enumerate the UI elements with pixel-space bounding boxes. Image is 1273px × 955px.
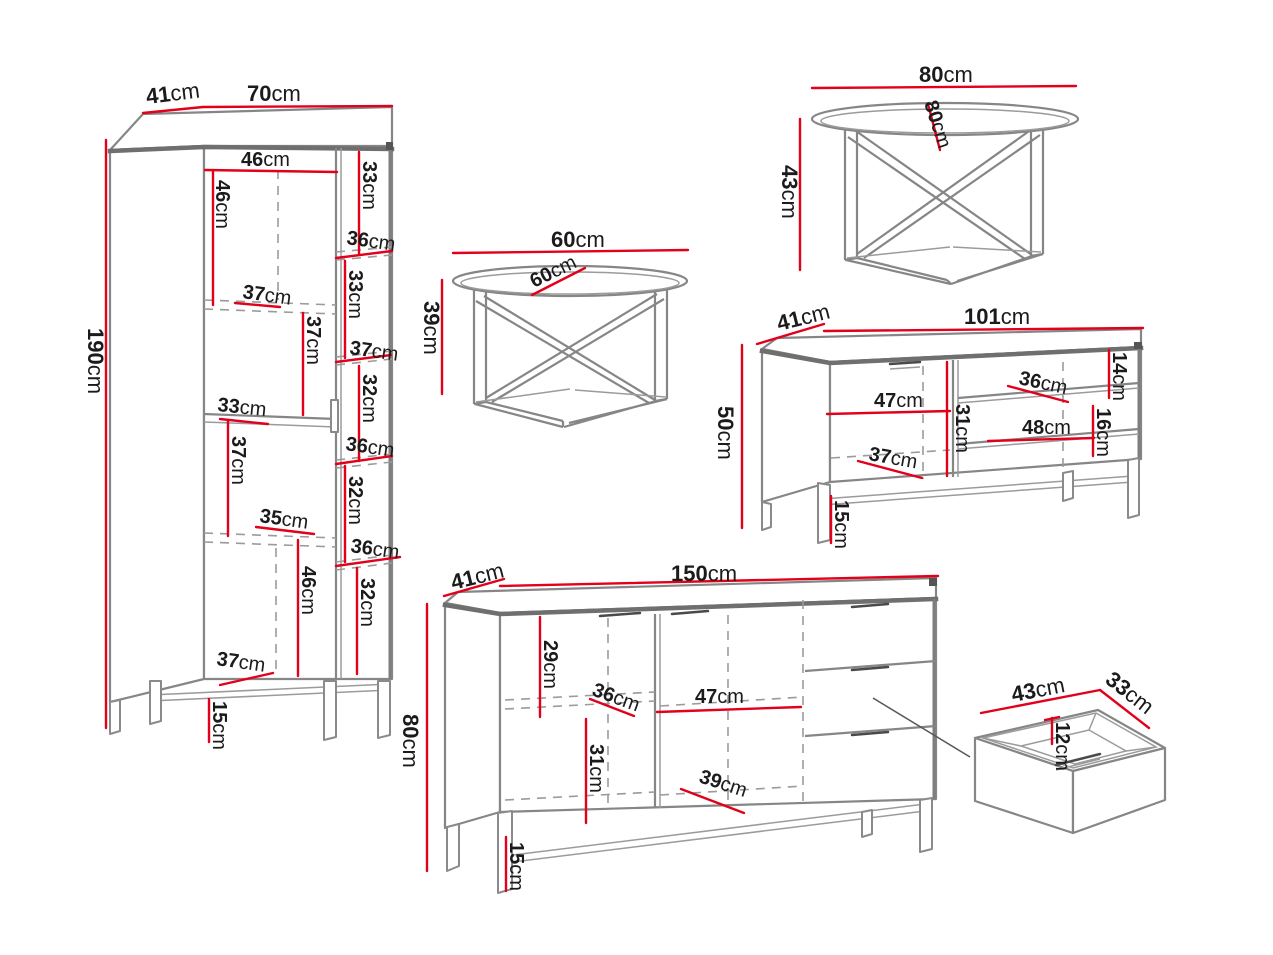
wardrobe-dim-label: 33cm: [344, 270, 366, 319]
sideboard-dim-label: 29cm: [539, 640, 561, 689]
sideboard-leg: [920, 798, 932, 852]
tv-stand-leg: [762, 502, 771, 530]
coffee-table-small-width-label: 60cm: [551, 227, 605, 252]
wardrobe-dim-label: 32cm: [344, 476, 366, 525]
wardrobe-top-face: [110, 107, 392, 150]
wardrobe-leg: [110, 700, 120, 734]
drawer-depth-label: 33cm: [1101, 666, 1159, 719]
coffee-table-large-width-label: 80cm: [919, 62, 973, 87]
tv-stand-width-label: 101cm: [964, 304, 1030, 329]
tv-stand-dim-label: 48cm: [1022, 417, 1071, 439]
wardrobe-leg: [324, 681, 336, 740]
wardrobe-dim-label: 46cm: [297, 566, 319, 615]
sideboard-height-label: 80cm: [398, 714, 423, 768]
wardrobe-leg: [378, 681, 390, 738]
coffee-table-large-drawing: 80cm 80cm 43cm: [777, 62, 1078, 284]
wardrobe-drawing: 41cm 70cm 190cm 46cm 46cm 37cm 37cm 33cm…: [83, 78, 401, 750]
wardrobe-leg-label: 15cm: [208, 701, 230, 750]
wardrobe-dim-label: 46cm: [241, 149, 290, 171]
furniture-dimension-diagram: 41cm 70cm 190cm 46cm 46cm 37cm 37cm 33cm…: [0, 0, 1273, 955]
diagram-canvas: 41cm 70cm 190cm 46cm 46cm 37cm 37cm 33cm…: [0, 0, 1273, 955]
tv-stand-drawing: 41cm 101cm 50cm 47cm 31cm 37cm 36cm 14cm…: [713, 299, 1143, 549]
tv-stand-side-face: [762, 349, 830, 502]
coffee-table-small-height-label: 39cm: [419, 301, 444, 355]
tv-stand-dim-label: 31cm: [951, 404, 973, 453]
tv-stand-leg: [1063, 471, 1073, 501]
sideboard-width-label: 150cm: [671, 561, 737, 586]
sideboard-drawing: 41cm 150cm 80cm 29cm 36cm 31cm 47cm 39cm…: [398, 558, 970, 893]
wardrobe-dim-label: 37cm: [302, 316, 324, 365]
wardrobe-dim-label: 32cm: [358, 374, 380, 423]
coffee-table-large-height-label: 43cm: [777, 165, 802, 219]
tv-stand-height-label: 50cm: [713, 406, 738, 460]
drawer-height-label: 12cm: [1051, 722, 1073, 771]
sideboard-leg: [447, 824, 459, 871]
wardrobe-width-label: 70cm: [247, 81, 301, 106]
wardrobe-dim-label: 37cm: [227, 436, 249, 485]
coffee-table-small-base: [474, 286, 667, 427]
tv-stand-dim-label: 14cm: [1108, 352, 1130, 401]
drawer-width-label: 43cm: [1009, 672, 1067, 707]
sideboard-depth-label: 41cm: [448, 558, 506, 595]
wardrobe-door-handle: [331, 400, 338, 432]
sideboard-leg-label: 15cm: [505, 842, 527, 891]
sideboard-leg: [862, 810, 872, 837]
sideboard-dim-label: 31cm: [585, 744, 607, 793]
tv-stand-dim-label: 16cm: [1092, 408, 1114, 457]
sideboard-side-face: [445, 603, 500, 828]
coffee-table-small-drawing: 60cm 60cm 39cm: [419, 227, 688, 427]
sideboard-dim-label: 47cm: [695, 686, 744, 708]
wardrobe-dim-label: 32cm: [356, 578, 378, 627]
wardrobe-leg: [150, 681, 161, 724]
wardrobe-depth-label: 41cm: [145, 78, 201, 109]
tv-stand-leg-label: 15cm: [830, 500, 852, 549]
wardrobe-side-face: [110, 146, 204, 702]
tv-stand-leg: [818, 483, 830, 543]
wardrobe-height-label: 190cm: [83, 328, 108, 394]
drawer-drawing: 43cm 33cm 12cm: [975, 666, 1165, 833]
tv-stand-dim-label: 47cm: [874, 390, 923, 412]
wardrobe-dim-label: 46cm: [211, 180, 233, 229]
tv-stand-leg: [1128, 458, 1139, 518]
wardrobe-dim-label: 33cm: [358, 161, 380, 210]
